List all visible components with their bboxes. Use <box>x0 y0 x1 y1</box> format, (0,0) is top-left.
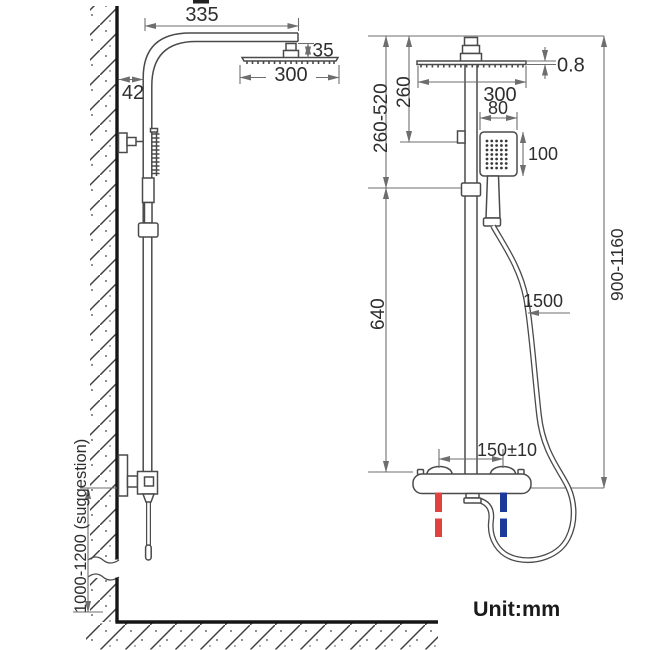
top-crop-mark <box>193 0 209 4</box>
slider-clamp-side <box>139 223 159 237</box>
dim-label-hand-shower-width: 80 <box>488 98 508 118</box>
riser-rail-front <box>465 61 477 474</box>
hand-shower-handle <box>484 176 501 226</box>
hand-shower-front <box>480 132 517 176</box>
technical-drawing-canvas: 335 42 35 300 1000-1200 (suggestion) <box>0 0 650 650</box>
front-view: 260-520 640 260 900-1160 <box>368 36 627 560</box>
handle-hose-nut <box>484 218 501 226</box>
valve-knob-side <box>145 477 154 486</box>
dimension-hose-length: 1500 <box>523 291 570 313</box>
thermostatic-valve-front <box>413 467 531 537</box>
head-ball-joint <box>286 44 296 51</box>
floor-hatch <box>86 624 438 650</box>
dim-label-lower-section: 640 <box>368 298 389 330</box>
unit-label: Unit:mm <box>473 597 560 621</box>
valve-wall-flange <box>119 455 128 496</box>
slider-ring <box>462 183 481 196</box>
dimension-wall-offset: 42 <box>119 80 144 105</box>
wall-bracket-upper <box>119 133 144 153</box>
overhead-shower-head-front <box>417 38 526 68</box>
dim-label-valve-floor-height: 1000-1200 (suggestion) <box>72 439 90 613</box>
dim-label-head-to-holder: 260 <box>394 76 415 108</box>
dim-label-overall-height: 900-1160 <box>607 228 627 301</box>
dimension-arm-length: 335 <box>145 4 299 31</box>
shower-dimension-drawing: 335 42 35 300 1000-1200 (suggestion) <box>0 0 650 650</box>
hand-shower-holder <box>458 131 466 143</box>
dimension-head-to-holder: 260 <box>394 36 415 142</box>
dim-label-inlet-spacing: 150±10 <box>477 440 537 460</box>
dim-label-holder-adjust-range: 260-520 <box>371 83 392 153</box>
shower-hose <box>478 226 574 560</box>
valve-nut-side <box>128 476 138 487</box>
dimension-hand-shower-height: 100 <box>523 132 558 176</box>
hose-side <box>146 502 152 560</box>
dim-label-connector-height: 35 <box>313 41 334 62</box>
dimension-overall-height: 900-1160 <box>604 36 627 488</box>
hand-shower-side <box>139 129 160 238</box>
dimension-head-thickness: 0.8 <box>527 47 585 79</box>
dimension-holder-adjust-range: 260-520 <box>371 36 392 188</box>
dim-label-wall-offset: 42 <box>122 82 144 104</box>
head-plate-front <box>417 61 526 65</box>
dim-label-arm-length: 335 <box>185 4 218 26</box>
valve-body-front <box>413 474 531 494</box>
dimension-lower-section: 640 <box>368 188 389 472</box>
dim-label-hand-shower-height: 100 <box>528 144 558 164</box>
dim-label-head-width-side: 300 <box>274 64 307 86</box>
dim-label-hose-length: 1500 <box>523 291 563 311</box>
riser-gooseneck-side <box>143 33 298 472</box>
dimension-inlet-spacing: 150±10 <box>439 440 537 468</box>
dim-label-head-thickness: 0.8 <box>557 55 585 77</box>
wall-hatch <box>90 6 117 622</box>
dimension-head-width-side: 300 <box>240 64 339 86</box>
hose-end-tip <box>146 545 152 560</box>
hand-shower-grip-side <box>143 178 155 203</box>
